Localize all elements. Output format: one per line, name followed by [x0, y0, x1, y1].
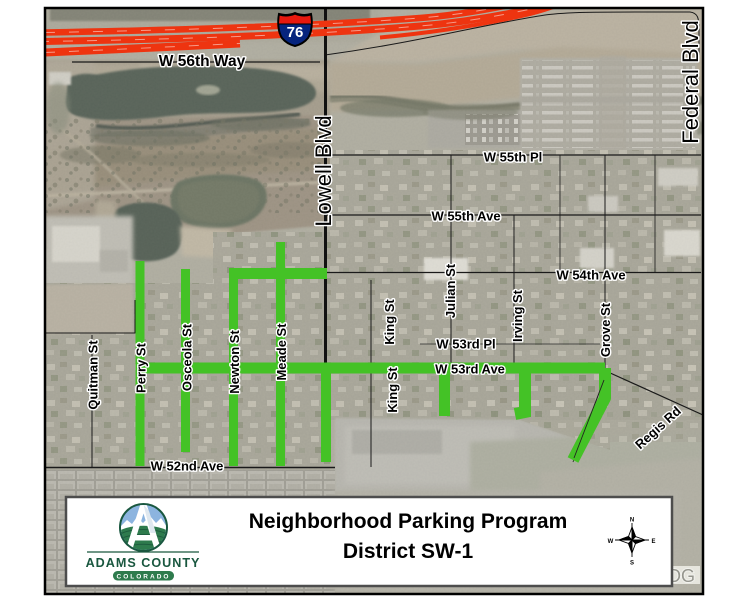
- svg-text:King St: King St: [382, 299, 397, 345]
- svg-text:W 54th Ave: W 54th Ave: [556, 268, 625, 283]
- svg-text:Irving St: Irving St: [510, 289, 525, 342]
- svg-text:W: W: [608, 539, 614, 545]
- svg-text:W 53rd Pl: W 53rd Pl: [436, 337, 495, 352]
- svg-text:W 53rd Ave: W 53rd Ave: [435, 362, 505, 377]
- svg-text:Grove St: Grove St: [598, 302, 613, 357]
- svg-text:COLORADO: COLORADO: [117, 574, 171, 581]
- svg-text:W 52nd Ave: W 52nd Ave: [151, 459, 224, 474]
- svg-text:King St: King St: [385, 367, 400, 413]
- svg-text:W 55th Pl: W 55th Pl: [484, 150, 543, 165]
- svg-text:Lowell Blvd: Lowell Blvd: [311, 115, 336, 226]
- svg-text:W 55th Ave: W 55th Ave: [431, 209, 500, 224]
- svg-text:W 56th Way: W 56th Way: [159, 53, 246, 70]
- svg-text:Neighborhood Parking Program: Neighborhood Parking Program: [249, 510, 568, 533]
- svg-text:Meade St: Meade St: [274, 323, 289, 381]
- svg-text:Osceola St: Osceola St: [180, 323, 195, 391]
- svg-text:Federal Blvd: Federal Blvd: [678, 20, 703, 144]
- svg-text:N: N: [630, 518, 634, 524]
- svg-text:Quitman St: Quitman St: [86, 340, 101, 410]
- svg-text:E: E: [651, 539, 655, 545]
- svg-text:Perry St: Perry St: [134, 342, 149, 393]
- svg-text:76: 76: [287, 24, 304, 41]
- svg-text:Julian St: Julian St: [443, 263, 458, 318]
- svg-text:S: S: [630, 561, 634, 567]
- svg-text:District SW-1: District SW-1: [343, 540, 474, 563]
- svg-text:ADAMS COUNTY: ADAMS COUNTY: [86, 556, 201, 570]
- svg-text:Newton St: Newton St: [227, 330, 242, 394]
